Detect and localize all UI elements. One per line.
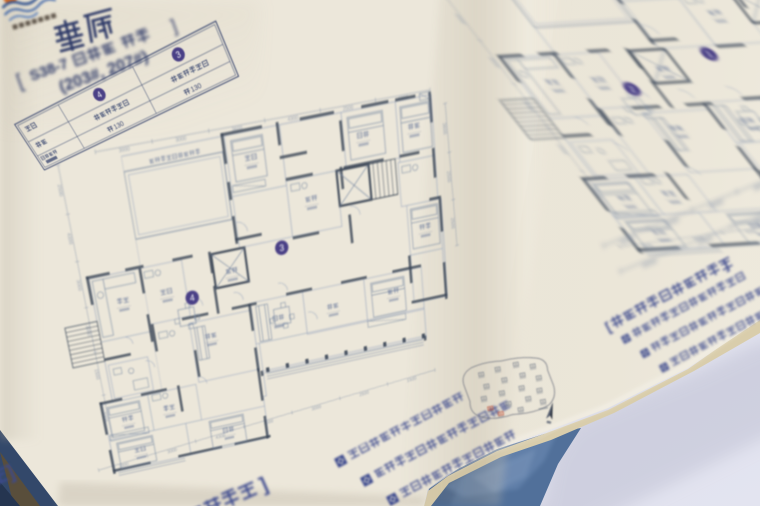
svg-text:2500: 2500 bbox=[359, 390, 369, 397]
svg-text:3600: 3600 bbox=[708, 199, 725, 211]
svg-text:]: ] bbox=[168, 16, 180, 37]
svg-text:1500: 1500 bbox=[663, 217, 680, 229]
svg-text:4300: 4300 bbox=[453, 14, 467, 25]
svg-text:3000: 3000 bbox=[311, 405, 321, 412]
svg-text:3600: 3600 bbox=[441, 122, 447, 135]
svg-text:4300: 4300 bbox=[215, 433, 226, 440]
svg-text:2500: 2500 bbox=[697, 236, 714, 248]
svg-text:1500: 1500 bbox=[555, 144, 569, 155]
svg-text:3000: 3000 bbox=[167, 448, 178, 455]
svg-text:]: ] bbox=[256, 474, 271, 497]
svg-text:3000: 3000 bbox=[175, 136, 187, 144]
svg-text:2500: 2500 bbox=[445, 171, 451, 183]
svg-text:3000: 3000 bbox=[641, 258, 658, 270]
svg-text:3000: 3000 bbox=[521, 101, 535, 112]
svg-text:3300: 3300 bbox=[619, 235, 636, 247]
svg-text:3000: 3000 bbox=[487, 57, 501, 68]
svg-text:2500: 2500 bbox=[449, 217, 455, 229]
svg-text:1500: 1500 bbox=[407, 376, 417, 383]
svg-text:3000: 3000 bbox=[118, 146, 130, 154]
